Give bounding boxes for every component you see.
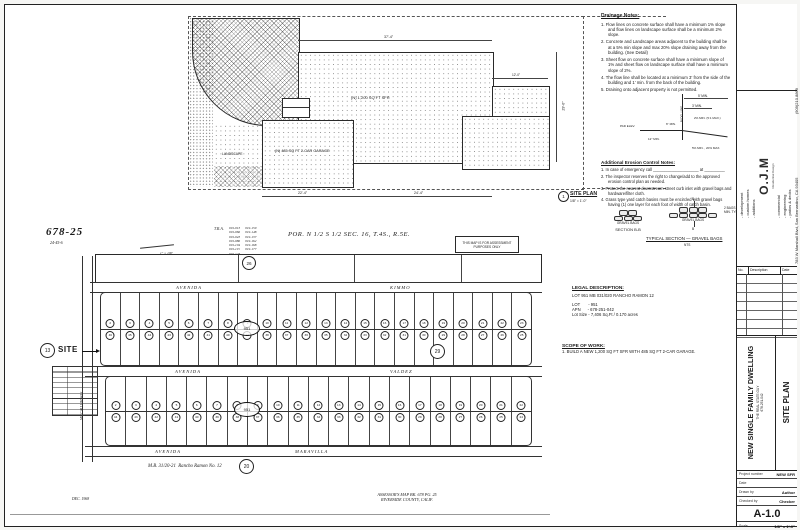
- lot-cell: 43: [126, 412, 146, 446]
- subject-lot-oval-2: 951: [234, 402, 260, 417]
- lot-cell: 16: [390, 377, 410, 411]
- lot-number-bubble: 35: [321, 331, 330, 340]
- field-value: 1/8" = 1'-0": [774, 524, 795, 529]
- sfr-label: (N) 1,200 SQ FT SFR: [351, 95, 390, 100]
- lot-cell: 12: [309, 377, 329, 411]
- lot-number-bubble: 11: [282, 319, 291, 328]
- map-por-title: POR. N 1/2 S 1/2 SEC. 16, T.4S., R.5E.: [288, 231, 410, 238]
- dim-right-label: 29'-0": [562, 101, 566, 110]
- lot-number-bubble: 41: [172, 413, 181, 422]
- legal-title: LEGAL DESCRIPTION:: [572, 286, 712, 291]
- lot-row: 234567891011121314151617181920212223: [101, 293, 531, 330]
- lot-cell: 15: [370, 377, 390, 411]
- lot-number-bubble: 37: [282, 331, 291, 340]
- street-label: AVENIDA: [176, 285, 202, 290]
- lot-cell: 14: [349, 377, 369, 411]
- drawing-sheet: LANDSCAPE (N) 1,200 SQ FT SFR (N) 485 SQ…: [0, 0, 800, 530]
- sheet-name-rotated: SITE PLAN: [776, 335, 797, 470]
- street-label: AVENIDA: [175, 369, 201, 374]
- list-item: 1. Flow lines on concrete surface shall …: [601, 22, 731, 38]
- field-scale: Scale 1/8" = 1'-0": [737, 522, 797, 530]
- field-label: Checked by: [739, 499, 757, 503]
- lot-cell: 33: [356, 330, 376, 366]
- lot-cell: 12: [297, 293, 317, 329]
- parcel-divider: [238, 255, 239, 282]
- legal-line1: LOT 951 MB 031/020 RANCHO RAMON 12: [572, 293, 712, 298]
- detail-dim-3-label: 3' MIN.: [692, 104, 702, 108]
- lot-cell: 27: [451, 412, 471, 446]
- lot-cell: 31: [395, 330, 415, 366]
- lot-cell: 25: [512, 330, 531, 366]
- gravel-bags-label-1: GRAVEL BAGS: [611, 221, 645, 225]
- lot-number-bubble: 25: [496, 413, 505, 422]
- lot-cell: 16: [375, 293, 395, 329]
- lot-cell: 4: [140, 293, 160, 329]
- sheet-name: SITE PLAN: [782, 382, 791, 424]
- lot-number-bubble: 20: [476, 401, 485, 410]
- lot-number-bubble: 31: [375, 413, 384, 422]
- gravel-bag-icon: [619, 210, 628, 216]
- field-label: Drawn by: [739, 490, 754, 494]
- lot-number-bubble: 12: [302, 319, 311, 328]
- detail-bldg-line-label: BLDG. LINE: [679, 106, 683, 123]
- section-marker-line-bottom: [694, 221, 695, 227]
- detail-dim-3: 3' MIN.: [684, 108, 712, 109]
- list-item: 019-177: [245, 247, 256, 251]
- firm-phone: (909)210.8869: [794, 88, 799, 114]
- list-item: 019-148: [245, 230, 256, 234]
- lot-number-bubble: 31: [400, 331, 409, 340]
- rev-grid-line: [782, 274, 783, 335]
- lot-cell: 2: [106, 377, 126, 411]
- section-bb-label: SECTION B-B: [611, 227, 645, 232]
- revision-table: No. Description Date: [737, 266, 797, 336]
- parcel-divider: [354, 255, 355, 282]
- lot-number-bubble: 32: [380, 331, 389, 340]
- project-title-rotated: NEW SINGLE FAMILY DWELLING THE REAL STAT…: [739, 335, 771, 470]
- lot-renumber-table: [52, 366, 98, 416]
- rev-grid-line: [746, 274, 747, 335]
- site-arrow-head: [96, 349, 100, 353]
- dim-bottom-right-label: 24'-4": [414, 191, 423, 195]
- lot-cell: 18: [415, 293, 435, 329]
- lot-number-bubble: 12: [314, 401, 323, 410]
- lot-cell: 21: [473, 293, 493, 329]
- lot-cell: 38: [258, 330, 278, 366]
- lot-block-1: 234567891011121314151617181920212223 464…: [100, 292, 532, 366]
- map-page-id: 678-25: [46, 226, 83, 238]
- rev-col-description: Description: [749, 266, 781, 274]
- lot-number-bubble: 39: [213, 413, 222, 422]
- lot-number-bubble: 13: [321, 319, 330, 328]
- section-marker-bottom: B: [692, 227, 694, 231]
- lot-cell: 7: [207, 377, 227, 411]
- firm-address-row: 783 W Marshall Blvd, San Bernardino, CA …: [794, 88, 799, 264]
- lot-cell: 25: [491, 412, 511, 446]
- lot-cell: 26: [493, 330, 513, 366]
- lot-number-bubble: 30: [419, 331, 428, 340]
- lot-cell: 24: [512, 412, 531, 446]
- detail-slope2-label: 5% MIN. , 20% MAX.: [692, 146, 720, 150]
- lot-cell: 6: [179, 293, 199, 329]
- lot-number-bubble: 42: [152, 413, 161, 422]
- rev-col-date: Date: [781, 266, 797, 274]
- lot-number-bubble: 34: [314, 413, 323, 422]
- lot-cell: 21: [491, 377, 511, 411]
- lot-cell: 19: [451, 377, 471, 411]
- lot-number-bubble: 32: [355, 413, 364, 422]
- typical-section-label: TYPICAL SECTION — GRAVEL BAGS: [646, 236, 722, 241]
- garage-label: (N) 485 SQ FT 2-CAR GARAGE: [275, 149, 330, 153]
- lot-cell: 20: [471, 377, 491, 411]
- site-marker-label: SITE: [58, 345, 78, 354]
- list-item: 019-115: [229, 247, 240, 251]
- lot-number-bubble: 27: [456, 413, 465, 422]
- lot-number-bubble: 8: [223, 319, 232, 328]
- detail-number-bubble: 1: [558, 191, 569, 202]
- lot-cell: 27: [473, 330, 493, 366]
- lot-row: 4645444342414039383736353433323130292827…: [101, 330, 531, 366]
- lot-cell: 4: [147, 377, 167, 411]
- lot-number-bubble: 36: [273, 413, 282, 422]
- lot-number-bubble: 16: [395, 401, 404, 410]
- mb-note: M.B. 31/20-21 Rancho Ramon No. 12: [148, 464, 222, 469]
- titleblock-fields: Project number NEW SFR Date Drawn by Aut…: [737, 470, 797, 526]
- lot-cell: 22: [512, 377, 531, 411]
- lot-number-bubble: 18: [436, 401, 445, 410]
- legal-size: Lot Size - 7,406 Sq.Ft / 0.170 acres: [572, 312, 712, 317]
- lot-cell: 18: [431, 377, 451, 411]
- lot-cell: 42: [179, 330, 199, 366]
- vertical-street-line: [92, 256, 93, 462]
- lot-number-bubble: 34: [341, 331, 350, 340]
- lot-cell: 26: [471, 412, 491, 446]
- map-page-sub: 24-45-6: [50, 240, 63, 245]
- scope-line1: 1. BUILD A NEW 1,200 SQ FT SFR WITH 485 …: [562, 349, 737, 354]
- porch-step-line: [283, 107, 309, 108]
- lot-cell: 34: [309, 412, 329, 446]
- ref-bubble-20: 20: [239, 459, 254, 474]
- lot-number-bubble: 13: [334, 401, 343, 410]
- detail-pad-line: [640, 130, 682, 131]
- lot-block-2: 2345678910111213141516171819202122 44434…: [105, 376, 532, 446]
- firm-logo-sub: Residential Design: [771, 88, 775, 264]
- ref-bubble-13: 13: [40, 343, 55, 358]
- lot-cell: 42: [147, 412, 167, 446]
- assessor-credit-line2: RIVERSIDE COUNTY, CALIF.: [352, 497, 462, 502]
- firm-services-right: - commercial- engineering- patios & deck…: [776, 88, 793, 264]
- field-drawn-by: Drawn by Author: [737, 488, 797, 497]
- lot-cell: 44: [140, 330, 160, 366]
- firm-services-left: - development- custom homes- additions: [739, 88, 756, 264]
- parcel-divider: [461, 255, 462, 282]
- field-label: Date: [739, 481, 746, 485]
- lot-cell: 36: [268, 412, 288, 446]
- lot-cell: 17: [410, 377, 430, 411]
- lot-cell: 46: [101, 330, 121, 366]
- lot-cell: 17: [395, 293, 415, 329]
- lot-number-bubble: 4: [145, 319, 154, 328]
- lot-number-bubble: 29: [415, 413, 424, 422]
- field-date: Date: [737, 479, 797, 488]
- lot-cell: 39: [207, 412, 227, 446]
- lot-number-bubble: 10: [273, 401, 282, 410]
- drainage-notes-list: 1. Flow lines on concrete surface shall …: [601, 22, 731, 93]
- gravel-bag-section-2: GRAVEL BAGS: [664, 207, 722, 222]
- list-item: - additions: [751, 88, 757, 218]
- lot-cell: 30: [390, 412, 410, 446]
- lot-number-bubble: 41: [204, 331, 213, 340]
- lot-number-bubble: 20: [458, 319, 467, 328]
- lot-number-bubble: 24: [517, 413, 526, 422]
- lot-cell: 7: [199, 293, 219, 329]
- sheet-number-cell: A-1.0: [737, 506, 797, 522]
- gravel-bag-icon: [669, 213, 678, 219]
- site-plan-title: SITE PLAN: [570, 191, 597, 197]
- lot-cell: 5: [167, 377, 187, 411]
- lot-number-bubble: 15: [375, 401, 384, 410]
- lot-number-bubble: 21: [478, 319, 487, 328]
- detail-6min-label: 6" MIN.: [666, 122, 676, 126]
- lot-number-bubble: 22: [498, 319, 507, 328]
- list-item: 1. In case of emergency call ___________…: [601, 167, 733, 172]
- lot-number-bubble: 28: [436, 413, 445, 422]
- lot-number-bubble: 5: [172, 401, 181, 410]
- lot-cell: 13: [317, 293, 337, 329]
- lot-cell: 34: [336, 330, 356, 366]
- detail-dim-5-label: 5' MIN.: [698, 94, 708, 98]
- field-value: Checker: [779, 499, 795, 504]
- lot-cell: 31: [370, 412, 390, 446]
- lot-number-bubble: 11: [294, 401, 303, 410]
- lot-cell: 36: [297, 330, 317, 366]
- assessment-note-text: THIS MAP IS FOR ASSESSMENT PURPOSES ONLY: [460, 241, 514, 249]
- lot-number-bubble: 46: [106, 331, 115, 340]
- street-label: KIMMO: [390, 285, 411, 290]
- lot-cell: 41: [199, 330, 219, 366]
- list-item: 019-066: [229, 230, 240, 234]
- list-item: 4. The flow line shall be located at a m…: [601, 75, 731, 86]
- lot-number-bubble: 35: [294, 413, 303, 422]
- lot-cell: 15: [356, 293, 376, 329]
- lot-number-bubble: 19: [439, 319, 448, 328]
- lot-number-bubble: 43: [165, 331, 174, 340]
- lot-number-bubble: 14: [341, 319, 350, 328]
- dim-line-top: 37'-4": [298, 40, 492, 41]
- legal-description: LEGAL DESCRIPTION: LOT 951 MB 031/020 RA…: [572, 286, 712, 317]
- firm-address: 783 W Marshall Blvd, San Bernardino, CA …: [794, 178, 799, 265]
- list-item: 5. Draining onto adjacent property is no…: [601, 87, 731, 92]
- lot-number-bubble: 17: [415, 401, 424, 410]
- detail-12min-label: 12" MIN.: [648, 137, 660, 141]
- lot-cell: 6: [187, 377, 207, 411]
- gravel-bag-icon: [708, 213, 717, 219]
- dim-line-adjacent: 12'-0": [492, 78, 548, 79]
- lot-number-bubble: 43: [131, 413, 140, 422]
- lot-row: 2345678910111213141516171819202122: [106, 377, 531, 412]
- porch-steps: [282, 98, 310, 118]
- lot-number-bubble: 36: [302, 331, 311, 340]
- gravel-bags-label-2: GRAVEL BAGS: [664, 218, 722, 222]
- lot-cell: 20: [454, 293, 474, 329]
- lot-number-bubble: 45: [125, 331, 134, 340]
- lot-number-bubble: 3: [131, 401, 140, 410]
- lot-cell: 43: [160, 330, 180, 366]
- gravel-bag-icon: [689, 207, 698, 213]
- list-item: 2. The inspector reserves the right to c…: [601, 174, 733, 184]
- lot-cell: 2: [101, 293, 121, 329]
- project-subtitle-2: 678-251-042: [760, 335, 764, 470]
- erosion-notes: Additional Erosion Control Notes: 1. In …: [601, 160, 733, 209]
- rev-col-no: No.: [737, 266, 749, 274]
- lot-cell: 11: [289, 377, 309, 411]
- dim-line-bottom-left: 22'-4": [262, 196, 352, 197]
- ref-bubble-29: 29: [430, 344, 445, 359]
- garage-building: (N) 485 SQ FT 2-CAR GARAGE: [262, 120, 354, 188]
- lot-number-bubble: 38: [263, 331, 272, 340]
- sheet-number: A-1.0: [754, 508, 781, 520]
- map-page-edge: [10, 514, 550, 515]
- adjacent-structure-lower: [462, 116, 550, 170]
- lot-cell: 10: [258, 293, 278, 329]
- street-label: VALDEZ: [390, 369, 413, 374]
- lot-number-bubble: 6: [192, 401, 201, 410]
- lot-number-bubble: 7: [213, 401, 222, 410]
- lot-cell: 40: [219, 330, 239, 366]
- field-label: Scale: [739, 524, 748, 528]
- drainage-notes-title: Drainage Notes:: [601, 13, 731, 19]
- lot-number-bubble: 33: [334, 413, 343, 422]
- lot-cell: 32: [349, 412, 369, 446]
- lot-row: 4443424140393837363534333231302928272625…: [106, 412, 531, 446]
- lot-cell: 32: [375, 330, 395, 366]
- lot-cell: 40: [187, 412, 207, 446]
- lot-number-bubble: 5: [165, 319, 174, 328]
- street-label: AVENIDA: [155, 449, 181, 454]
- lot-number-bubble: 2: [111, 401, 120, 410]
- lot-number-bubble: 17: [400, 319, 409, 328]
- lot-number-bubble: 22: [517, 401, 526, 410]
- drainage-notes: Drainage Notes: 1. Flow lines on concret…: [601, 13, 731, 94]
- firm-logo-block: O.J.M Residential Design: [757, 88, 775, 264]
- assessment-note-box: THIS MAP IS FOR ASSESSMENT PURPOSES ONLY: [455, 236, 519, 253]
- lot-number-bubble: 28: [458, 331, 467, 340]
- dim-line-bottom-right: 24'-4": [352, 196, 492, 197]
- lot-cell: 37: [277, 330, 297, 366]
- lot-number-bubble: 25: [517, 331, 526, 340]
- gravel-bag-icon: [679, 207, 688, 213]
- lot-number-bubble: 40: [192, 413, 201, 422]
- field-project-number: Project number NEW SFR: [737, 470, 797, 479]
- dim-line-right: 29'-0": [556, 52, 557, 162]
- lot-cell: 8: [219, 293, 239, 329]
- lot-cell: 11: [277, 293, 297, 329]
- lot-cell: 5: [160, 293, 180, 329]
- map-date-note: DEC. 1968: [72, 497, 89, 501]
- dim-adjacent-label: 12'-0": [512, 73, 520, 77]
- lot-number-bubble: 14: [355, 401, 364, 410]
- street-avenida-maravilla: AVENIDA MARAVILLA: [85, 446, 542, 457]
- dim-top-label: 37'-4": [384, 35, 393, 39]
- lot-cell: 3: [121, 293, 141, 329]
- gravel-bag-section-1: GRAVEL BAGS SECTION B-B: [611, 210, 645, 232]
- lot-number-bubble: 44: [145, 331, 154, 340]
- lot-number-bubble: 15: [361, 319, 370, 328]
- lot-cell: 41: [167, 412, 187, 446]
- gravel-bag-icon: [698, 207, 707, 213]
- lot-number-bubble: 4: [152, 401, 161, 410]
- nts-label: NTS: [684, 243, 690, 247]
- title-block: - development- custom homes- additions O…: [736, 4, 797, 526]
- field-label: Project number: [739, 472, 763, 476]
- lot-cell: 14: [336, 293, 356, 329]
- lot-number-bubble: 2: [106, 319, 115, 328]
- lot-cell: 33: [329, 412, 349, 446]
- subject-lot-oval: 951: [234, 321, 260, 336]
- lot-number-bubble: 10: [263, 319, 272, 328]
- adjacent-structure-upper: [492, 86, 550, 118]
- lot-cell: 19: [434, 293, 454, 329]
- detail-slope1-label: 2% MIN. (5:1 MAX.): [694, 116, 721, 120]
- lot-cell: 28: [431, 412, 451, 446]
- list-item: - patios & decks: [787, 88, 793, 218]
- erosion-notes-list: 1. In case of emergency call ___________…: [601, 167, 733, 208]
- site-arrow-line: [82, 351, 97, 352]
- firm-logo: O.J.M: [757, 88, 771, 264]
- lot-number-bubble: 7: [204, 319, 213, 328]
- dim-bottom-left-label: 22'-4": [298, 191, 307, 195]
- lot-number-bubble: 44: [111, 413, 120, 422]
- lot-number-bubble: 33: [361, 331, 370, 340]
- field-checked-by: Checked by Checker: [737, 497, 797, 506]
- assessor-credit: ASSESSOR'S MAP BK. 678 PG. 25 RIVERSIDE …: [352, 492, 462, 502]
- lot-number-bubble: 29: [439, 331, 448, 340]
- map-parcel-strip: [95, 254, 542, 283]
- scope-of-work: SCOPE OF WORK: 1. BUILD A NEW 1,200 SQ F…: [562, 344, 737, 354]
- lot-number-bubble: 19: [456, 401, 465, 410]
- lot-cell: 3: [126, 377, 146, 411]
- titleblock-blank-panel: [737, 4, 797, 91]
- list-item: 4. Grass type yard catch basins must be …: [601, 197, 733, 207]
- lot-number-bubble: 26: [476, 413, 485, 422]
- lot-number-bubble: 21: [496, 401, 505, 410]
- gravel-bag-icon: [628, 210, 637, 216]
- lot-number-bubble: 16: [380, 319, 389, 328]
- lot-cell: 13: [329, 377, 349, 411]
- lot-number-bubble: 30: [395, 413, 404, 422]
- project-title: NEW SINGLE FAMILY DWELLING: [746, 335, 755, 470]
- detail-dim-5: 5' MIN.: [684, 98, 728, 99]
- lot-number-bubble: 18: [419, 319, 428, 328]
- list-item: 2. Concrete and Landscape areas adjacent…: [601, 39, 731, 55]
- list-item: 3. Protect the nearest downstream street…: [601, 186, 733, 196]
- lot-number-bubble: 42: [184, 331, 193, 340]
- lot-number-bubble: 3: [125, 319, 134, 328]
- lot-number-bubble: 23: [517, 319, 526, 328]
- lot-number-bubble: 27: [478, 331, 487, 340]
- vertical-street-line: [82, 256, 83, 462]
- lot-number-bubble: 26: [498, 331, 507, 340]
- lot-number-bubble: 40: [223, 331, 232, 340]
- field-value: Author: [782, 490, 795, 495]
- landscape-label: LANDSCAPE: [222, 152, 243, 156]
- lot-cell: 45: [121, 330, 141, 366]
- ref-bubble-26: 26: [242, 256, 256, 270]
- erosion-notes-title: Additional Erosion Control Notes:: [601, 160, 733, 165]
- lot-cell: 28: [454, 330, 474, 366]
- street-label: MARAVILLA: [295, 449, 328, 454]
- firm-info-rotated: - development- custom homes- additions O…: [737, 86, 800, 266]
